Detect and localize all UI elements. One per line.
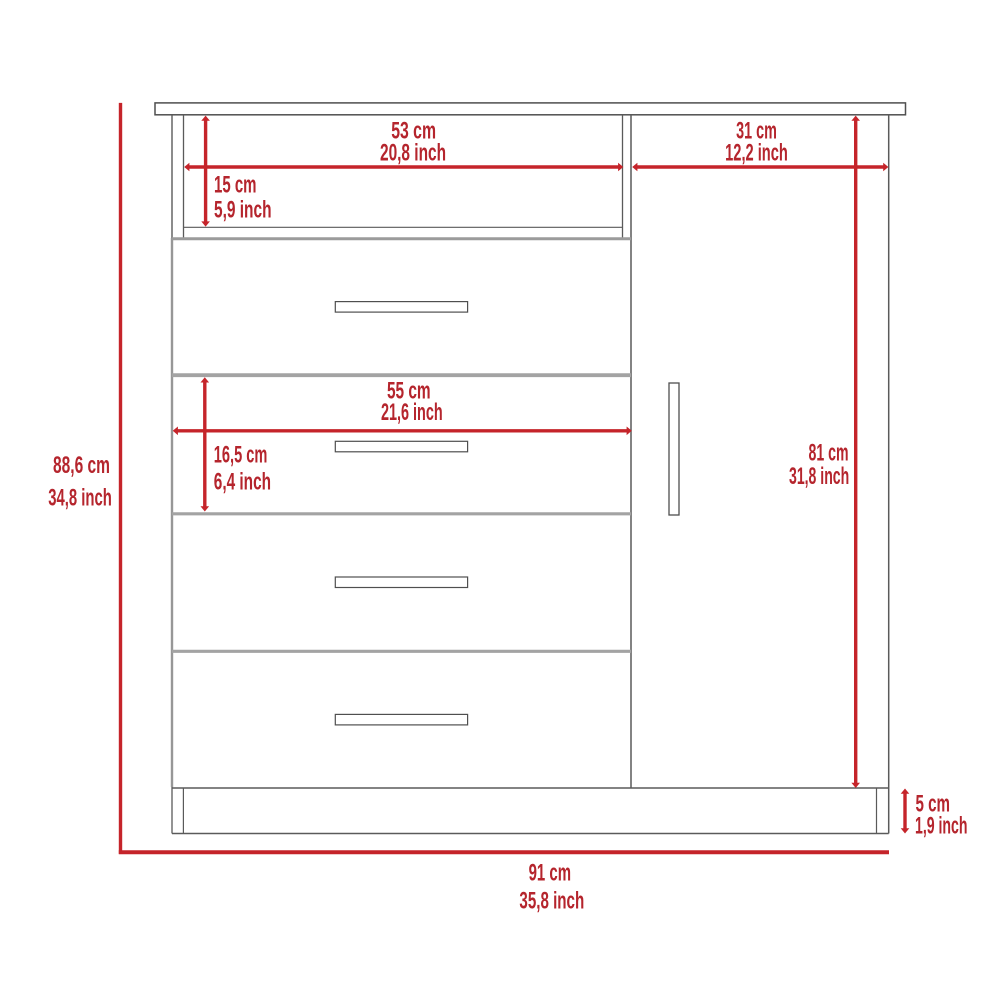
svg-text:31,8 inch: 31,8 inch	[789, 463, 849, 490]
svg-text:15 cm: 15 cm	[214, 171, 257, 198]
svg-text:91 cm: 91 cm	[529, 860, 571, 887]
svg-text:20,8 inch: 20,8 inch	[380, 139, 446, 166]
svg-text:88,6 cm: 88,6 cm	[53, 452, 110, 479]
svg-text:16,5 cm: 16,5 cm	[214, 442, 268, 469]
svg-text:21,6 inch: 21,6 inch	[381, 399, 443, 426]
svg-text:12,2 inch: 12,2 inch	[725, 139, 788, 166]
svg-text:34,8 inch: 34,8 inch	[48, 485, 112, 512]
svg-text:1,9 inch: 1,9 inch	[915, 812, 968, 839]
svg-text:6,4 inch: 6,4 inch	[214, 469, 271, 496]
svg-text:35,8 inch: 35,8 inch	[519, 887, 584, 914]
svg-text:5,9 inch: 5,9 inch	[214, 197, 272, 224]
